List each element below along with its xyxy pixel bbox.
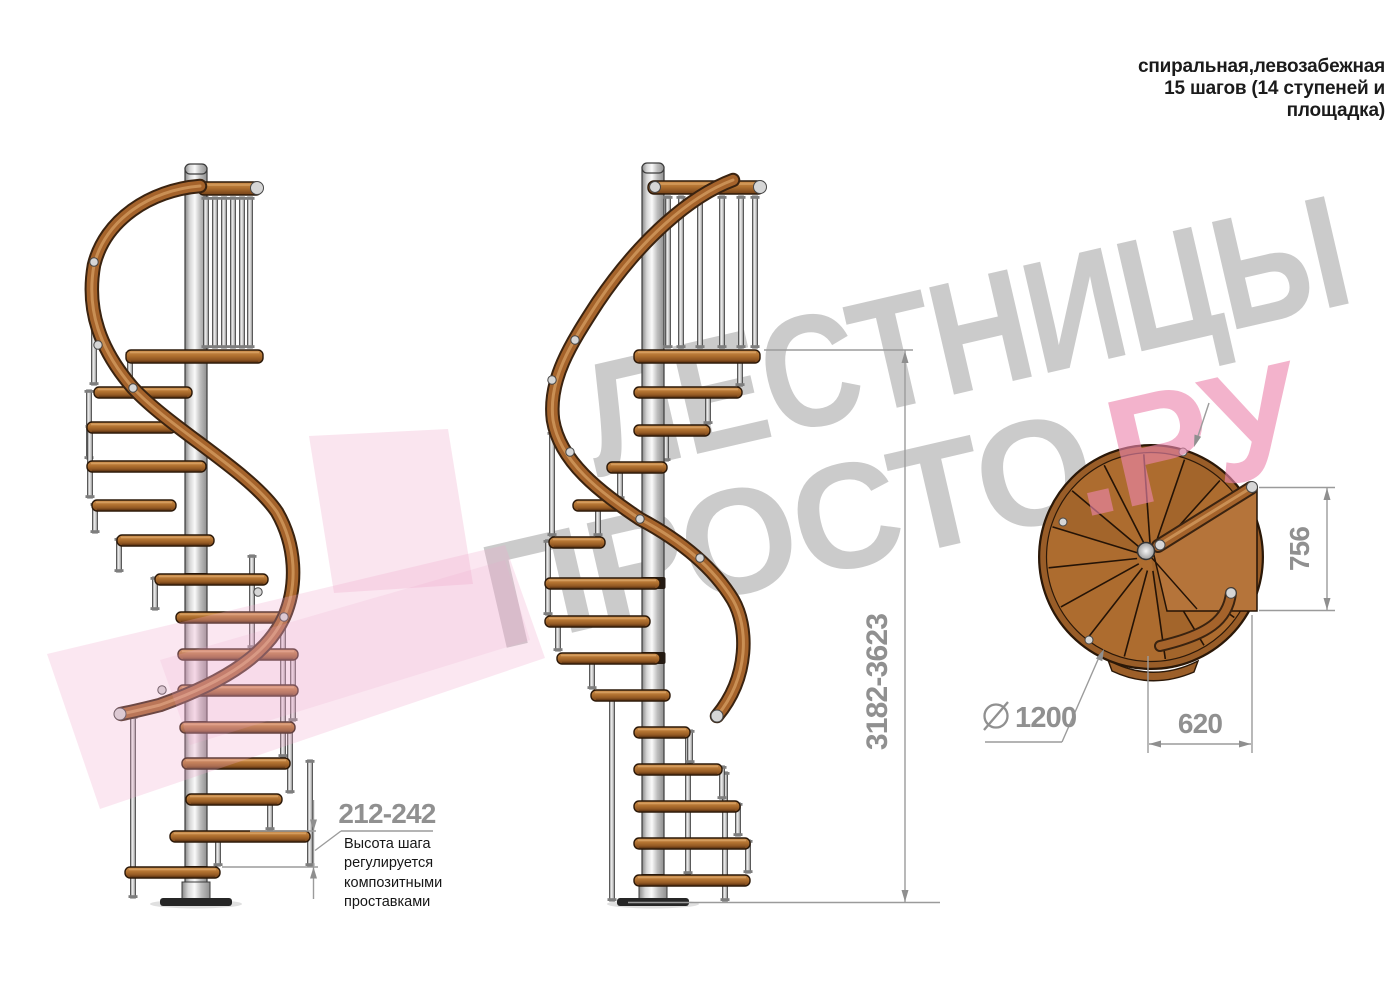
step-height-note: Высота шага регулируется композитными пр…	[344, 835, 442, 912]
dim-plan-depth-label: 756	[1284, 527, 1315, 572]
dim-total-height-label: 3182-3623	[861, 614, 894, 750]
diameter-icon	[984, 702, 1008, 730]
page-title: спиральная,левозабежная 15 шагов (14 сту…	[1138, 56, 1385, 122]
dim-step-height-label: 212-242	[338, 798, 435, 829]
dim-landing-width-label: 620	[1178, 708, 1223, 739]
dimension-layer: 212-242 3182-3623 756 620 1200	[0, 0, 1400, 1000]
dim-diameter-label: 1200	[1015, 702, 1076, 734]
drawing-canvas: ЛЕСТНИЦЫ ПРОСТО	[0, 0, 1400, 1000]
